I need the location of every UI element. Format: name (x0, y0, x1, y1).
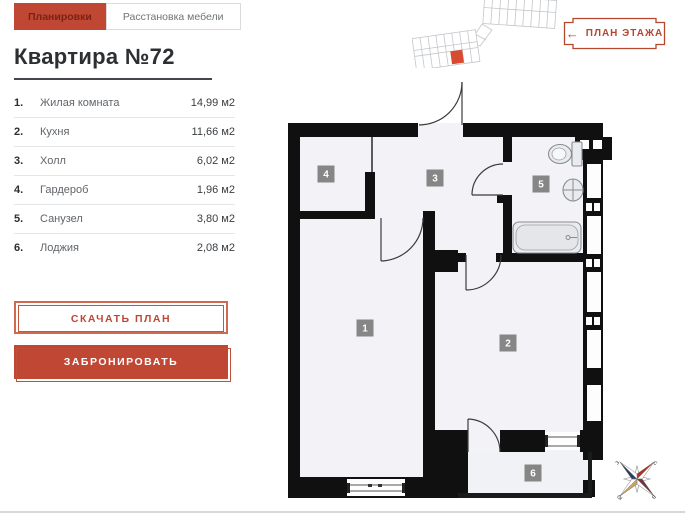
room-area: 6,02 м2 (197, 155, 235, 167)
apartment-page: Планировки Расстановка мебели Квартира №… (0, 0, 685, 518)
room-row-1: 1. Жилая комната 14,99 м2 (14, 89, 235, 118)
book-label: ЗАБРОНИРОВАТЬ (64, 356, 178, 368)
floor-plan-button[interactable]: ← ПЛАН ЭТАЖА (563, 17, 666, 50)
compass-east-label: в (650, 493, 658, 501)
download-plan-button[interactable]: СКАЧАТЬ ПЛАН (14, 301, 228, 334)
compass-west-label: з (614, 459, 621, 466)
room-area: 2,08 м2 (197, 242, 235, 254)
mini-map-outline (412, 0, 558, 68)
download-plan-label: СКАЧАТЬ ПЛАН (71, 313, 171, 325)
room-list: 1. Жилая комната 14,99 м2 2. Кухня 11,66… (14, 89, 235, 262)
room-area: 11,66 м2 (192, 126, 235, 138)
toilet-icon (549, 142, 583, 166)
kitchen-window (545, 432, 580, 450)
tab-furniture[interactable]: Расстановка мебели (106, 3, 241, 30)
room-name: Лоджия (40, 242, 197, 254)
svg-text:3: 3 (432, 174, 438, 185)
room-row-2: 2. Кухня 11,66 м2 (14, 118, 235, 147)
page-bottom-divider (0, 511, 685, 513)
svg-text:6: 6 (530, 469, 536, 480)
room-number: 3. (14, 155, 40, 167)
room-name: Холл (40, 155, 197, 167)
page-title: Квартира №72 (14, 44, 175, 70)
room-name: Кухня (40, 126, 192, 138)
room-number: 5. (14, 213, 40, 225)
tab-layouts[interactable]: Планировки (14, 3, 106, 30)
book-button[interactable]: ЗАБРОНИРОВАТЬ (14, 345, 228, 379)
room-number: 2. (14, 126, 40, 138)
compass-rose: с з ю в (608, 448, 666, 510)
living-room-window (347, 479, 405, 496)
svg-text:1: 1 (362, 324, 368, 335)
building-mini-map[interactable] (412, 0, 558, 68)
sink-icon (563, 179, 583, 201)
svg-text:4: 4 (323, 170, 329, 181)
room-row-4: 4. Гардероб 1,96 м2 (14, 176, 235, 205)
room-number: 4. (14, 184, 40, 196)
bathtub-icon (513, 222, 581, 253)
room-row-6: 6. Лоджия 2,08 м2 (14, 234, 235, 262)
compass-major-points (608, 448, 666, 510)
apartment-floor-plan: 1 2 3 4 5 6 (275, 78, 615, 518)
room-number: 6. (14, 242, 40, 254)
room-name: Санузел (40, 213, 197, 225)
room-area: 1,96 м2 (197, 184, 235, 196)
room-name: Жилая комната (40, 97, 191, 109)
room-name: Гардероб (40, 184, 197, 196)
room-row-3: 3. Холл 6,02 м2 (14, 147, 235, 176)
room-area: 14,99 м2 (191, 97, 235, 109)
svg-text:5: 5 (538, 180, 544, 191)
room-area: 3,80 м2 (197, 213, 235, 225)
floor-plan-label: ПЛАН ЭТАЖА (586, 28, 664, 39)
room-number: 1. (14, 97, 40, 109)
compass-north-label: с (652, 460, 660, 468)
svg-text:2: 2 (505, 339, 511, 350)
view-tabs: Планировки Расстановка мебели (14, 3, 241, 30)
selected-unit-highlight (450, 50, 464, 65)
title-underline (14, 78, 212, 80)
room-row-5: 5. Санузел 3,80 м2 (14, 205, 235, 234)
back-arrow-icon: ← (566, 26, 579, 41)
